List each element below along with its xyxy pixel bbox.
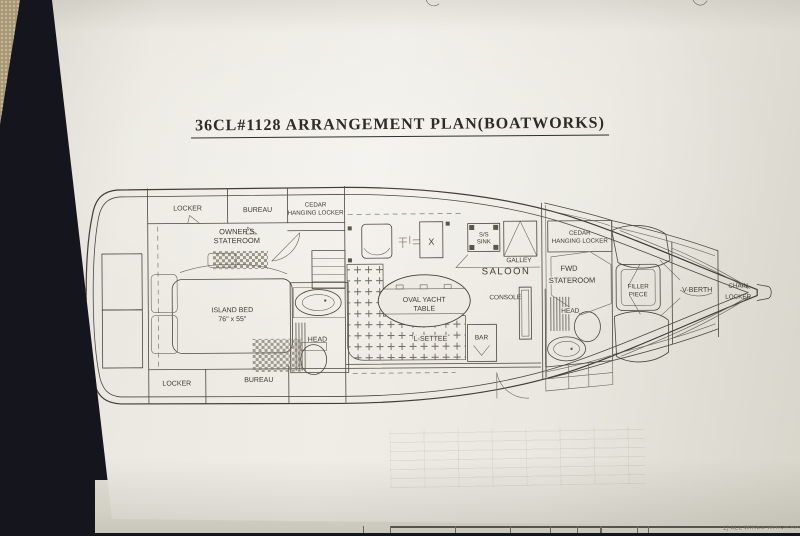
paper-sheet: 36CL#1128 ARRANGEMENT PLAN(BOATWORKS) [0, 0, 800, 533]
hatch-x-label: X [428, 237, 434, 247]
chain-locker-label-line2: LOCKER [725, 294, 751, 301]
under-sheet-grid-line [637, 526, 638, 533]
owners-stateroom-label-line2: STATEROOM [214, 236, 260, 245]
cedar-locker-aft-label-line1: CEDAR [305, 202, 327, 209]
faucet-dot [324, 299, 326, 301]
saloon-chair [362, 224, 392, 258]
owners-stateroom: OWNER'S STATEROOM ISLAND BED 76" x 55" L… [147, 188, 345, 403]
bureau-stbd-label: BUREAU [244, 377, 273, 384]
filler-piece-label-line2: PIECE [629, 291, 648, 298]
v-berth-label: V-BERTH [682, 287, 712, 294]
owners-stateroom-label-line1: OWNER'S [219, 227, 254, 236]
under-sheet-grid-line [510, 526, 511, 533]
chain-locker: CHAIN LOCKER [718, 251, 752, 337]
galley-label: GALLEY [506, 257, 532, 264]
fwd-sink [547, 337, 585, 361]
cedar-locker-fwd-label-line1: CEDAR [569, 230, 591, 237]
fwd-stateroom-label-line1: FWD [560, 264, 578, 273]
filler-piece: FILLER PIECE [616, 264, 660, 310]
ss-sink-label-line1: S/S [479, 232, 489, 238]
bureau-port-label: BUREAU [243, 207, 272, 214]
locker-port-label: LOCKER [173, 205, 202, 212]
cabinet-glyphs [399, 236, 420, 248]
under-sheet-grid-line [577, 526, 578, 533]
binder-marks [426, 0, 707, 7]
bar: BAR [467, 324, 496, 361]
bar-label: BAR [475, 334, 489, 341]
under-sheet-grid-line [455, 526, 456, 533]
transom-steps [101, 189, 158, 404]
tile-landing [253, 339, 303, 372]
helm-console: CONSOLE [489, 287, 531, 339]
oval-table-label-line2: TABLE [413, 306, 435, 313]
ss-sink: S/S SINK [468, 223, 500, 251]
under-sheet-grid-line [390, 526, 391, 533]
console-label: CONSOLE [489, 294, 521, 301]
fwd-toilet [574, 312, 600, 342]
cedar-locker-aft-label-line2: HANGING LOCKER [288, 209, 345, 216]
filler-piece-label-line1: FILLER [627, 283, 649, 290]
boat-arrangement-plan: OWNER'S STATEROOM ISLAND BED 76" x 55" L… [0, 0, 800, 536]
island-bed-label-line2: 76" x 55" [218, 316, 246, 323]
refrigerator [504, 221, 537, 256]
oval-yacht-table: OVAL YACHT TABLE [378, 275, 470, 328]
locker-stbd-label: LOCKER [162, 380, 191, 387]
fwd-stateroom-label-line2: STATEROOM [549, 276, 595, 285]
island-bed-label-line1: ISLAND BED [211, 307, 253, 314]
cedar-locker-fwd-label-line2: HANGING LOCKER [552, 238, 609, 245]
under-sheet-grid-line [550, 526, 551, 533]
aft-head: HEAD [251, 186, 349, 403]
l-settee-label: L-SETTEE [414, 336, 448, 343]
under-sheet-grid-line [648, 526, 649, 533]
ss-sink-label-line2: SINK [477, 239, 491, 245]
fwd-head-label: HEAD [561, 308, 579, 315]
oval-table-label-line1: OVAL YACHT [403, 297, 447, 304]
saloon: X OVAL YACHT TABLE L-SETTEE SALOON [345, 213, 541, 399]
saloon-label: SALOON [482, 266, 531, 277]
under-sheet-grid-line [363, 526, 364, 533]
chain-locker-label-line1: CHAIN [728, 283, 748, 290]
aft-head-label: HEAD [308, 337, 328, 344]
galley: S/S SINK GALLEY [456, 203, 547, 380]
carpet-texture [0, 0, 40, 140]
under-sheet-grid-line [600, 526, 602, 533]
deck-door-swing [497, 372, 529, 398]
